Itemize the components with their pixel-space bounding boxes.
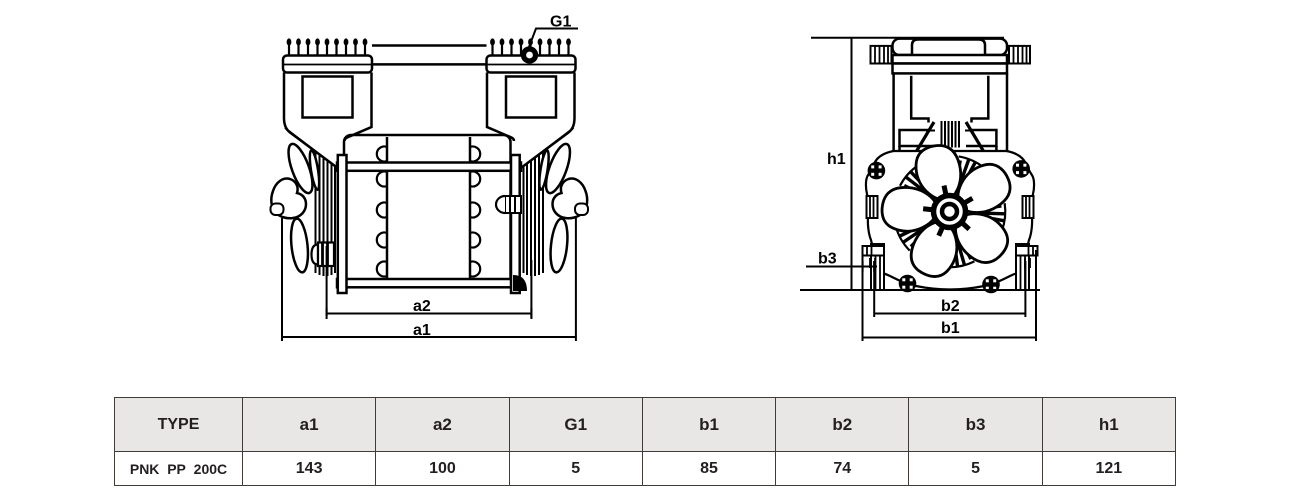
svg-text:b2: b2 bbox=[941, 298, 960, 315]
svg-text:G1: G1 bbox=[550, 14, 571, 31]
svg-text:b1: b1 bbox=[941, 320, 960, 337]
svg-text:b3: b3 bbox=[818, 251, 837, 268]
svg-text:h1: h1 bbox=[827, 151, 846, 168]
svg-text:a2: a2 bbox=[413, 298, 431, 315]
svg-text:a1: a1 bbox=[413, 322, 431, 339]
